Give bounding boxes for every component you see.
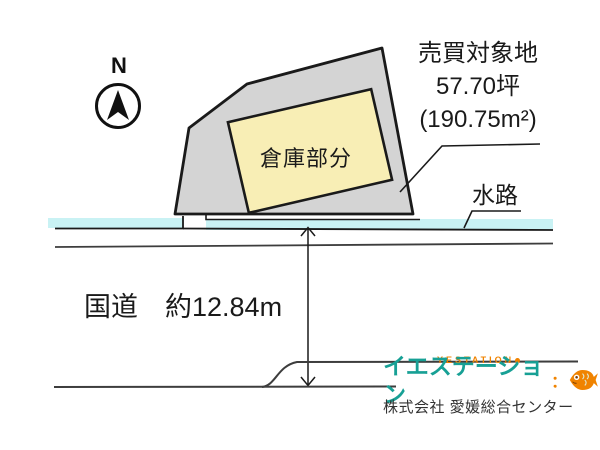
brand-logo: YESTATION イエステーション ： 株式会社 愛媛総合センター bbox=[383, 355, 599, 417]
road-label: 国道 約12.84m bbox=[84, 285, 282, 324]
waterway-edge-top bbox=[206, 215, 420, 220]
logo-main-row: イエステーション ： bbox=[383, 365, 599, 395]
property-area-sqm: (190.75m²) bbox=[395, 103, 561, 136]
leader-line-property bbox=[400, 144, 540, 192]
logo-dots: ： bbox=[551, 368, 567, 392]
property-area-tsubo: 57.70坪 bbox=[395, 70, 561, 103]
road-shoulder-line bbox=[55, 244, 553, 248]
waterway-label: 水路 bbox=[472, 176, 518, 210]
company-name: 株式会社 愛媛総合センター bbox=[383, 396, 599, 417]
road-edge-lower bbox=[54, 387, 396, 388]
site-plan-canvas: N 売買対象地 57.70坪 bbox=[0, 0, 600, 450]
property-title: 売買対象地 bbox=[395, 37, 561, 70]
property-info-block: 売買対象地 57.70坪 (190.75m²) bbox=[395, 37, 561, 136]
warehouse-label: 倉庫部分 bbox=[260, 141, 352, 173]
waterway-strip-left bbox=[48, 218, 183, 228]
fish-icon bbox=[568, 365, 599, 395]
